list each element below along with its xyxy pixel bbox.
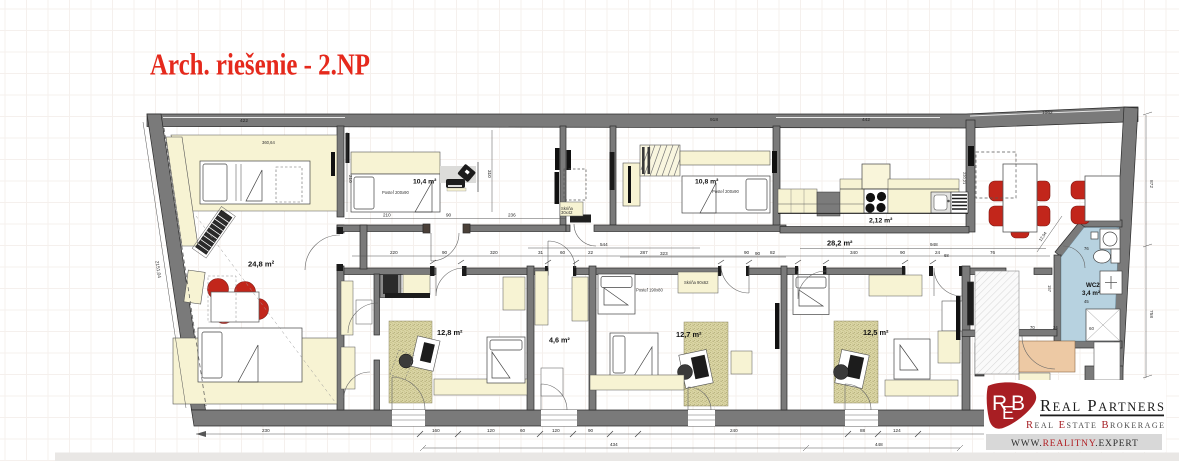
svg-text:220,21: 220,21 <box>962 172 967 185</box>
svg-text:120: 120 <box>552 428 560 433</box>
svg-text:60: 60 <box>560 250 566 255</box>
svg-text:3,4 m²: 3,4 m² <box>1082 290 1100 297</box>
svg-text:918: 918 <box>710 117 718 123</box>
svg-text:Skriňa 90x62: Skriňa 90x62 <box>684 280 709 285</box>
svg-text:WWW.REALITNY.EXPERT: WWW.REALITNY.EXPERT <box>1011 439 1139 449</box>
svg-text:22: 22 <box>588 250 594 255</box>
svg-text:28,2 m²: 28,2 m² <box>827 239 853 248</box>
svg-text:90: 90 <box>588 428 594 433</box>
svg-text:240: 240 <box>730 428 738 433</box>
svg-text:Posteľ 200x90: Posteľ 200x90 <box>712 189 740 194</box>
svg-text:12,8 m²: 12,8 m² <box>437 328 463 337</box>
svg-text:220: 220 <box>390 250 398 255</box>
svg-text:12,5 m²: 12,5 m² <box>863 328 889 337</box>
svg-text:24,8 m²: 24,8 m² <box>248 260 275 269</box>
svg-text:60: 60 <box>520 428 526 433</box>
svg-text:872: 872 <box>1148 180 1154 188</box>
svg-text:31: 31 <box>538 250 544 255</box>
svg-text:70: 70 <box>1030 325 1035 330</box>
svg-text:340: 340 <box>850 250 858 255</box>
svg-text:WC2: WC2 <box>1086 282 1100 289</box>
svg-text:210: 210 <box>348 175 353 183</box>
svg-text:68: 68 <box>944 253 949 258</box>
svg-text:124: 124 <box>893 428 901 433</box>
svg-text:287: 287 <box>640 250 648 255</box>
svg-text:60: 60 <box>1089 326 1095 331</box>
svg-text:758: 758 <box>1148 310 1154 318</box>
svg-text:360,64: 360,64 <box>262 140 275 145</box>
svg-text:10,8 m²: 10,8 m² <box>695 179 719 186</box>
svg-text:24: 24 <box>935 250 941 255</box>
svg-text:448: 448 <box>875 442 883 447</box>
svg-text:236: 236 <box>508 213 516 218</box>
svg-text:10,4 m²: 10,4 m² <box>413 179 437 186</box>
svg-text:76: 76 <box>1084 246 1089 251</box>
svg-text:Arch. riešenie - 2.NP: Arch. riešenie - 2.NP <box>150 47 370 82</box>
svg-text:2,12 m²: 2,12 m² <box>869 218 893 225</box>
svg-text:45: 45 <box>1084 299 1089 304</box>
svg-text:4,6 m²: 4,6 m² <box>549 336 570 345</box>
svg-text:24: 24 <box>1053 325 1058 330</box>
svg-text:434: 434 <box>610 442 618 447</box>
svg-text:160: 160 <box>432 428 440 433</box>
svg-text:12,7 m²: 12,7 m² <box>676 330 702 339</box>
svg-text:90: 90 <box>446 213 452 218</box>
svg-text:Posteľ 190x80: Posteľ 190x80 <box>636 288 664 293</box>
svg-text:90: 90 <box>755 251 761 256</box>
svg-text:544: 544 <box>600 242 608 247</box>
svg-text:157: 157 <box>1047 285 1052 293</box>
svg-text:30x42: 30x42 <box>561 210 573 215</box>
svg-text:320: 320 <box>490 250 498 255</box>
svg-text:442: 442 <box>862 117 870 123</box>
svg-text:76: 76 <box>990 250 996 255</box>
svg-text:230: 230 <box>262 428 270 433</box>
svg-text:90: 90 <box>744 250 750 255</box>
svg-text:948: 948 <box>930 242 938 247</box>
svg-text:210: 210 <box>383 213 391 218</box>
svg-text:310: 310 <box>487 170 492 178</box>
svg-text:1062: 1062 <box>1042 110 1053 116</box>
svg-text:120: 120 <box>487 428 495 433</box>
svg-text:323: 323 <box>660 251 668 256</box>
svg-text:422: 422 <box>240 118 248 124</box>
svg-text:88: 88 <box>860 428 866 433</box>
svg-text:90: 90 <box>442 250 448 255</box>
svg-text:82: 82 <box>770 250 776 255</box>
svg-text:B: B <box>1011 392 1025 415</box>
svg-text:90: 90 <box>900 250 906 255</box>
svg-text:Posteľ 200x90: Posteľ 200x90 <box>382 190 410 195</box>
